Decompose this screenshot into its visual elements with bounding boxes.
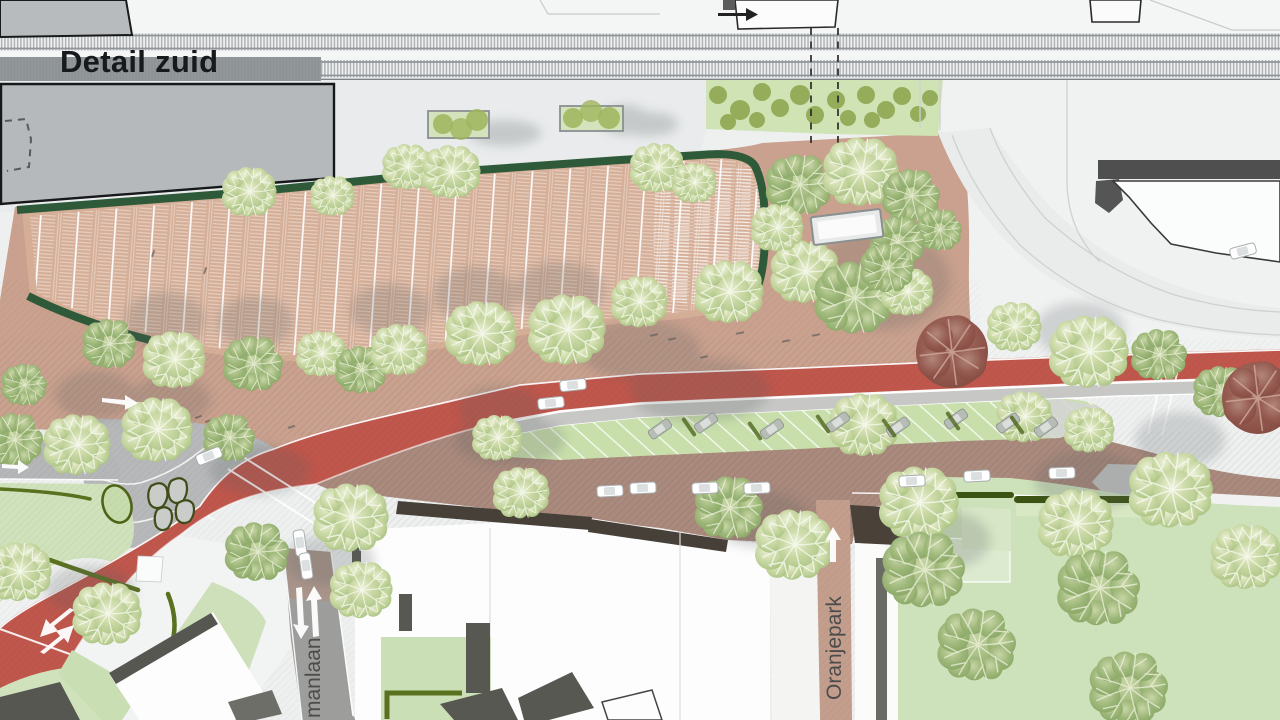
svg-text:Detail zuid: Detail zuid xyxy=(60,44,218,79)
svg-text:Oranjepark: Oranjepark xyxy=(823,596,846,700)
svg-text:manlaan: manlaan xyxy=(302,637,325,718)
